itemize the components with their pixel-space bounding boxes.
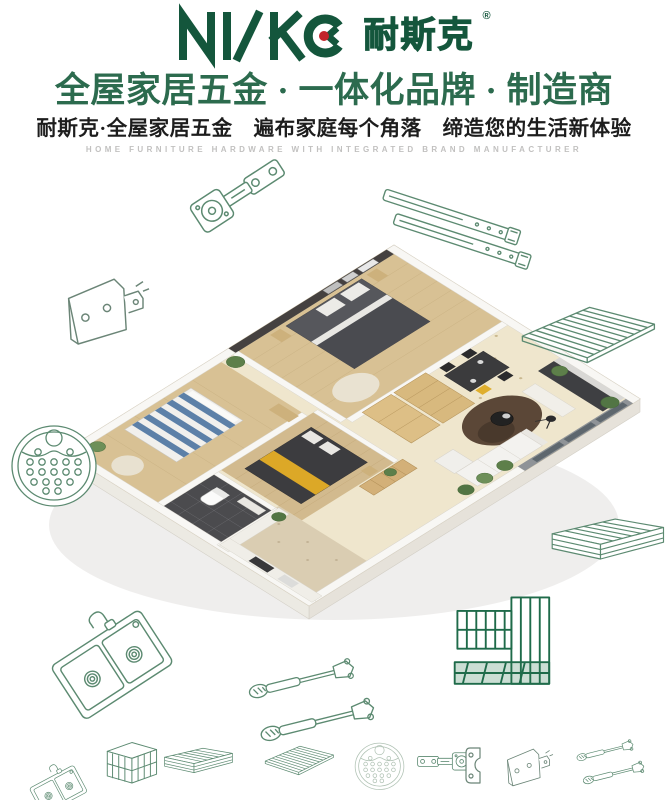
corner-bracket-small-icon [500, 743, 556, 791]
english-tagline: HOME FURNITURE HARDWARE WITH INTEGRATED … [0, 145, 668, 154]
round-tray-small-icon [352, 741, 406, 793]
hardware-icons-row [0, 735, 668, 800]
wire-shelf-icon [518, 301, 658, 371]
gas-struts-small-icon [572, 741, 654, 789]
wire-shelf-small-icon [262, 743, 336, 787]
gas-lift-struts-icon [240, 650, 410, 730]
logo-red-dot-icon [319, 31, 329, 41]
nisko-wordmark-icon [177, 9, 355, 61]
drawer-basket-icon [160, 743, 236, 791]
corner-bracket-icon [55, 270, 160, 350]
drawer-slide-rails-icon [380, 181, 555, 241]
logo-chinese-text: 耐斯克 [363, 18, 474, 53]
wire-organizer-rack-icon [450, 590, 555, 698]
brand-logo: 耐斯克 ® [0, 8, 668, 62]
kitchen-sink-icon [25, 580, 160, 692]
poster: 耐斯克 ® 全屋家居五金 · 一体化品牌 · 制造商 耐斯克·全屋家居五金 遍布… [0, 0, 668, 800]
main-headline: 全屋家居五金 · 一体化品牌 · 制造商 [0, 72, 668, 111]
poster-header: 耐斯克 ® 全屋家居五金 · 一体化品牌 · 制造商 耐斯克·全屋家居五金 遍布… [0, 8, 668, 154]
round-perforated-tray-icon [8, 423, 100, 511]
pull-out-basket-icon [546, 511, 664, 577]
hardware-collage-scene [0, 165, 668, 800]
cabinet-hinge-icon [182, 177, 302, 247]
mounting-bracket-icon [462, 743, 488, 789]
sub-headline: 耐斯克·全屋家居五金 遍布家庭每个角落 缔造您的生活新体验 [0, 118, 668, 141]
wire-box-basket-icon [100, 737, 158, 795]
kitchen-sink-small-icon [16, 739, 88, 797]
registered-mark: ® [482, 10, 490, 22]
